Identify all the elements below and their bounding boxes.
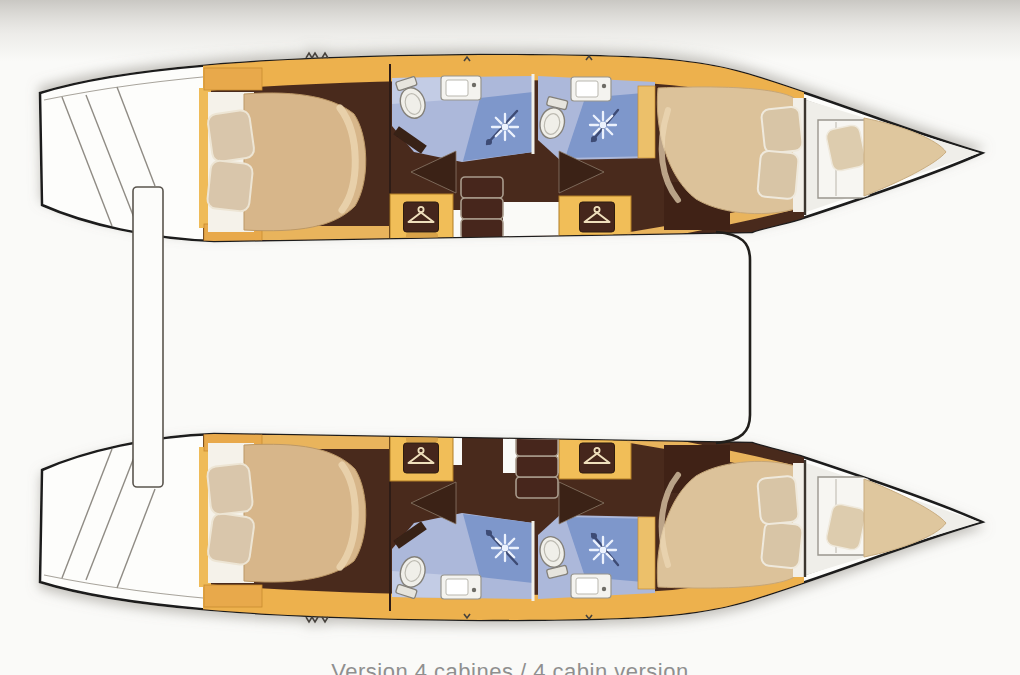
aft-davit-bar: [133, 187, 163, 487]
step: [516, 456, 558, 477]
pillow: [761, 106, 803, 154]
pillow: [207, 463, 254, 515]
shower-sprayer-icon: [492, 535, 518, 561]
deck-plan-image: Version 4 cabines / 4 cabin version: [0, 0, 1020, 675]
sink-icon: [571, 574, 611, 598]
deck-plan-svg: [0, 0, 1020, 675]
pillow: [757, 150, 799, 199]
hanger-icon: [580, 443, 615, 473]
aft-head: [392, 513, 533, 601]
companionway-steps: [516, 436, 558, 498]
sink-icon: [441, 575, 481, 599]
pillow: [757, 476, 799, 525]
shower-sprayer-icon: [590, 112, 616, 138]
pillow: [761, 521, 803, 569]
companionway-steps: [461, 177, 503, 239]
step: [461, 177, 503, 198]
step: [461, 198, 503, 219]
shower-wand-head: [591, 136, 597, 142]
forward-head: [537, 515, 655, 599]
pillow: [207, 109, 255, 162]
shower-wand-head: [486, 139, 492, 145]
shower-wand-head: [591, 533, 597, 539]
head-cabin-wall: [638, 86, 655, 158]
forward-head: [537, 76, 655, 160]
shower-sprayer-icon: [492, 114, 518, 140]
cabinet: [204, 585, 262, 607]
shower-sprayer-icon: [590, 537, 616, 563]
plan-caption: Version 4 cabines / 4 cabin version: [0, 659, 1020, 675]
aft-head: [392, 74, 533, 162]
cabinet: [204, 68, 262, 90]
top-shadow-band: [0, 0, 1020, 62]
sink-icon: [571, 77, 611, 101]
hanger-icon: [580, 202, 615, 232]
hanger-icon: [404, 202, 439, 232]
head-cabin-wall: [638, 517, 655, 589]
hanger-icon: [404, 443, 439, 473]
step: [516, 477, 558, 498]
pillow: [207, 160, 254, 212]
sink-icon: [441, 76, 481, 100]
pillow: [207, 512, 255, 565]
step: [461, 219, 503, 239]
shower-wand-head: [486, 530, 492, 536]
